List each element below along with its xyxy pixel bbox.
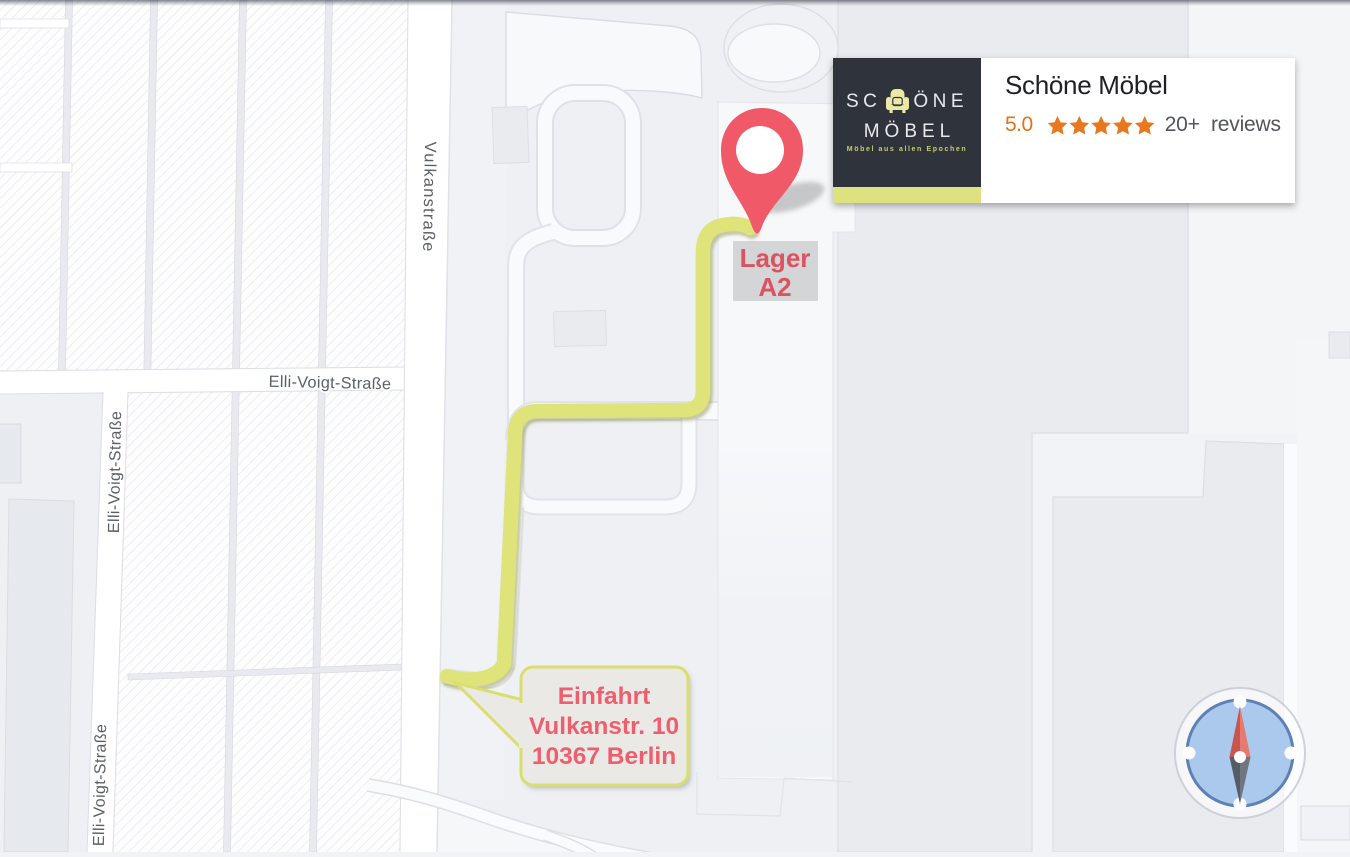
svg-text:Elli-Voigt-Straße: Elli-Voigt-Straße <box>268 373 391 394</box>
svg-text:A2: A2 <box>758 272 791 302</box>
svg-text:Vulkanstr. 10: Vulkanstr. 10 <box>529 713 679 740</box>
svg-text:Elli-Voigt-Straße: Elli-Voigt-Straße <box>91 724 110 847</box>
svg-text:Lager: Lager <box>740 243 811 273</box>
svg-text:Vulkanstraße: Vulkanstraße <box>419 141 439 252</box>
svg-text:10367 Berlin: 10367 Berlin <box>532 743 676 770</box>
svg-text:Elli-Voigt-Straße: Elli-Voigt-Straße <box>106 411 125 534</box>
svg-text:Einfahrt: Einfahrt <box>558 683 651 710</box>
